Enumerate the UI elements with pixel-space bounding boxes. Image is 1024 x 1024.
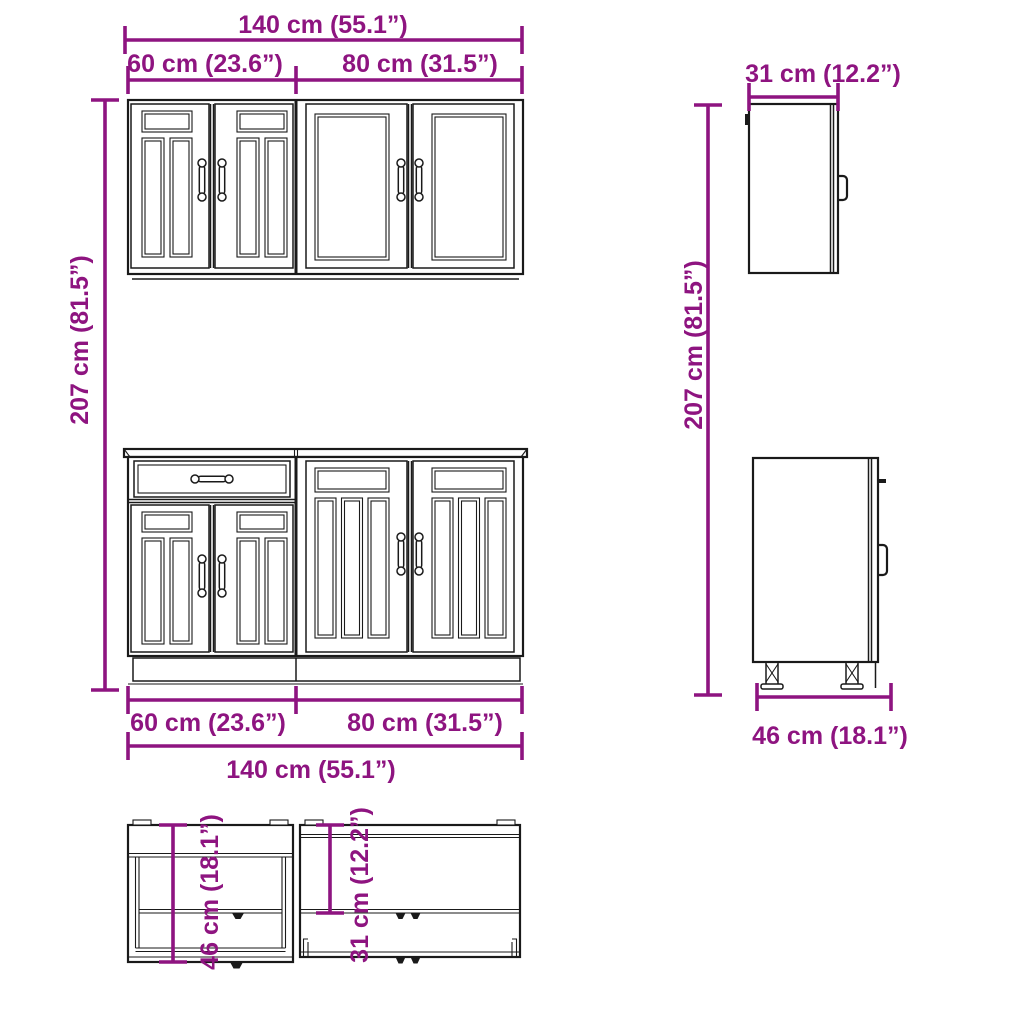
dim-label-front-height: 207 cm (81.5”) [66, 255, 94, 425]
dim-label-bottom-width-total: 140 cm (55.1”) [226, 756, 396, 784]
door-handle [218, 555, 226, 597]
hinge [878, 479, 886, 483]
dim-label-front-width-left: 60 cm (23.6”) [127, 50, 283, 78]
drawer-handle [191, 475, 233, 483]
wall-cabinet-top-view [300, 820, 520, 964]
door-handle-side [838, 176, 847, 200]
door-handle [415, 159, 423, 201]
cabinet-foot [841, 662, 863, 689]
wall-cabinet-side-view [745, 104, 847, 273]
product-dimension-diagram: 140 cm (55.1”) 60 cm (23.6”) 80 cm (31.5… [0, 0, 1024, 1024]
plinth [133, 658, 520, 681]
door-handle [198, 159, 206, 201]
dim-label-top-view-base-depth: 46 cm (18.1”) [196, 814, 224, 970]
dim-label-base-cabinet-depth: 46 cm (18.1”) [752, 722, 908, 750]
base-cabinets-front-view [124, 449, 527, 684]
door-handle [415, 533, 423, 575]
door-handle-side [878, 545, 887, 575]
cabinet-foot [761, 662, 783, 689]
dim-label-bottom-width-right: 80 cm (31.5”) [347, 709, 503, 737]
door-handle [397, 533, 405, 575]
base-cabinet-side-view [753, 458, 887, 689]
door-handle [218, 159, 226, 201]
dim-label-bottom-width-left: 60 cm (23.6”) [130, 709, 286, 737]
dim-label-front-width-total: 140 cm (55.1”) [238, 11, 408, 39]
dim-label-top-view-wall-depth: 31 cm (12.2”) [346, 807, 374, 963]
door-handle [198, 555, 206, 597]
dim-label-wall-cabinet-depth: 31 cm (12.2”) [745, 60, 901, 88]
dim-label-side-height: 207 cm (81.5”) [680, 260, 708, 430]
door-handle [397, 159, 405, 201]
diagram-svg: 140 cm (55.1”) 60 cm (23.6”) 80 cm (31.5… [0, 0, 1024, 1024]
wall-cabinets-front-view [128, 100, 523, 279]
dim-label-front-width-right: 80 cm (31.5”) [342, 50, 498, 78]
hinge [745, 114, 750, 125]
